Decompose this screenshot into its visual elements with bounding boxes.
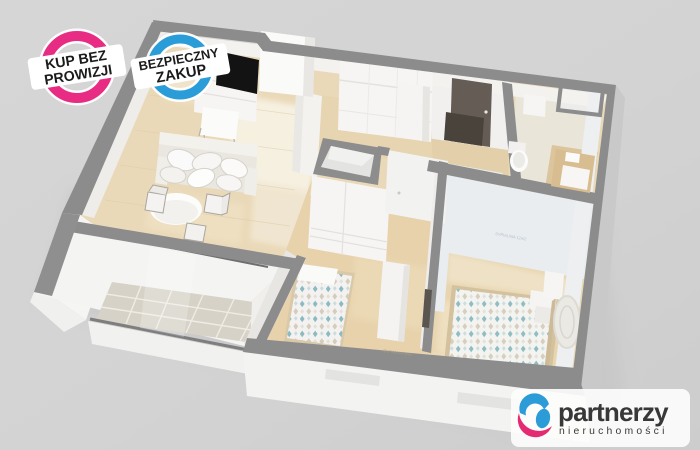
svg-text:partnerzy: partnerzy — [558, 397, 669, 427]
svg-text:nieruchomości: nieruchomości — [559, 426, 668, 437]
